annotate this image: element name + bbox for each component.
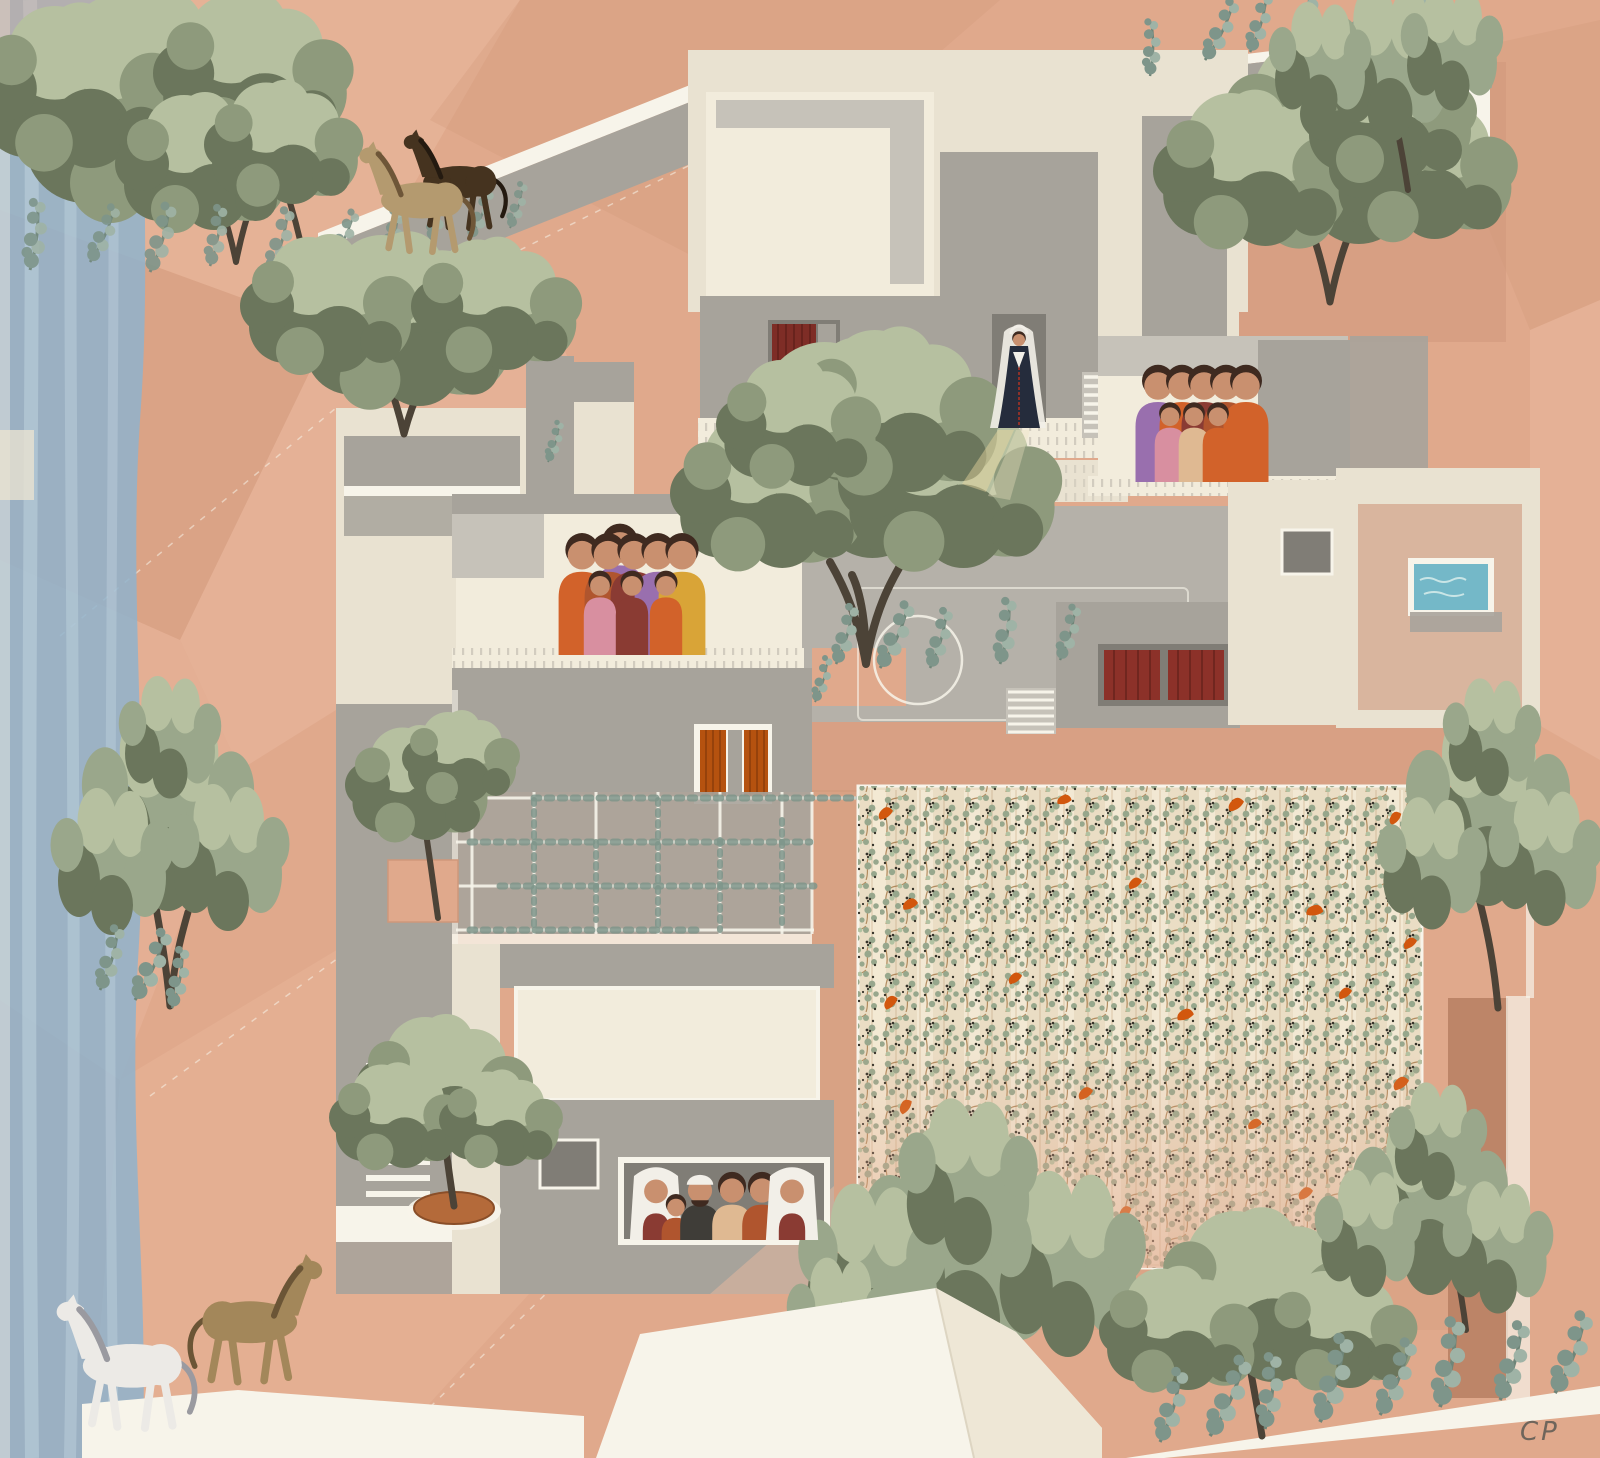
cream-pier [1098,56,1142,336]
blank-facade-panel [516,988,818,1100]
tree-planter [388,860,458,922]
artist-signature: CP [1520,1417,1560,1447]
pool [1408,558,1502,632]
balcony-family [559,524,706,655]
red-double-door [1098,644,1232,706]
upper-grey-mass [940,152,1098,304]
door-stairs [1006,688,1056,734]
grey-window [1282,530,1332,574]
artwork-canvas: CP [0,0,1600,1458]
top-facade-panel [706,92,934,296]
terrace-family [1136,365,1269,482]
